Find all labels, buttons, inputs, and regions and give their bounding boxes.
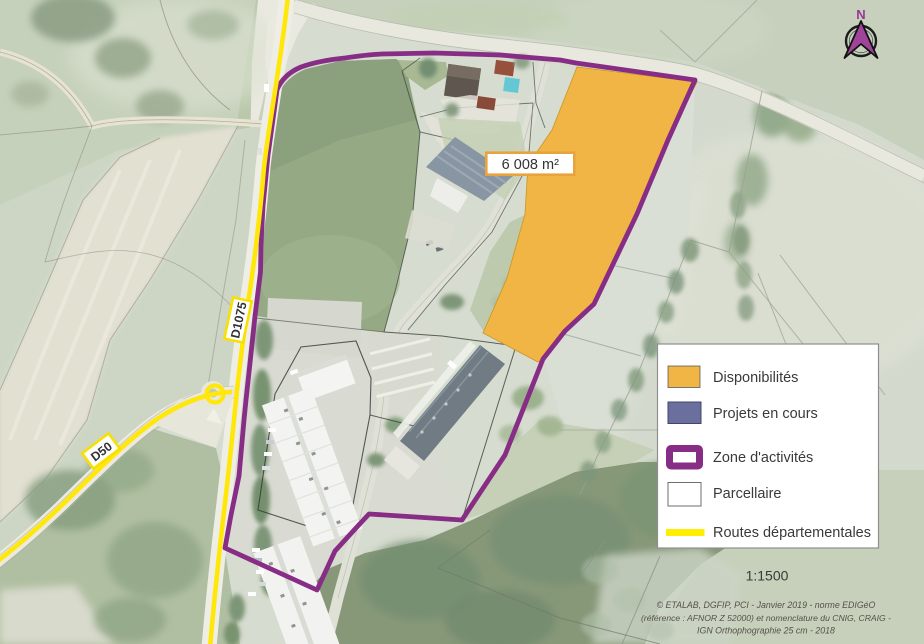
svg-text:Routes départementales: Routes départementales — [713, 525, 871, 541]
svg-text:N: N — [856, 7, 865, 22]
svg-text:© ETALAB, DGFIP, PCI - Janvier: © ETALAB, DGFIP, PCI - Janvier 2019 - no… — [657, 600, 876, 610]
svg-text:Disponibilités: Disponibilités — [713, 370, 798, 386]
svg-text:(référence : AFNOR Z 52000) et: (référence : AFNOR Z 52000) et nomenclat… — [641, 613, 891, 623]
svg-text:IGN Orthophographie 25 cm - 20: IGN Orthophographie 25 cm - 2018 — [697, 626, 835, 636]
svg-text:Projets en cours: Projets en cours — [713, 406, 818, 422]
svg-text:Zone d'activités: Zone d'activités — [713, 450, 813, 466]
svg-text:1:1500: 1:1500 — [746, 568, 789, 584]
svg-text:Parcellaire: Parcellaire — [713, 486, 782, 502]
svg-text:6 008 m²: 6 008 m² — [502, 157, 559, 173]
